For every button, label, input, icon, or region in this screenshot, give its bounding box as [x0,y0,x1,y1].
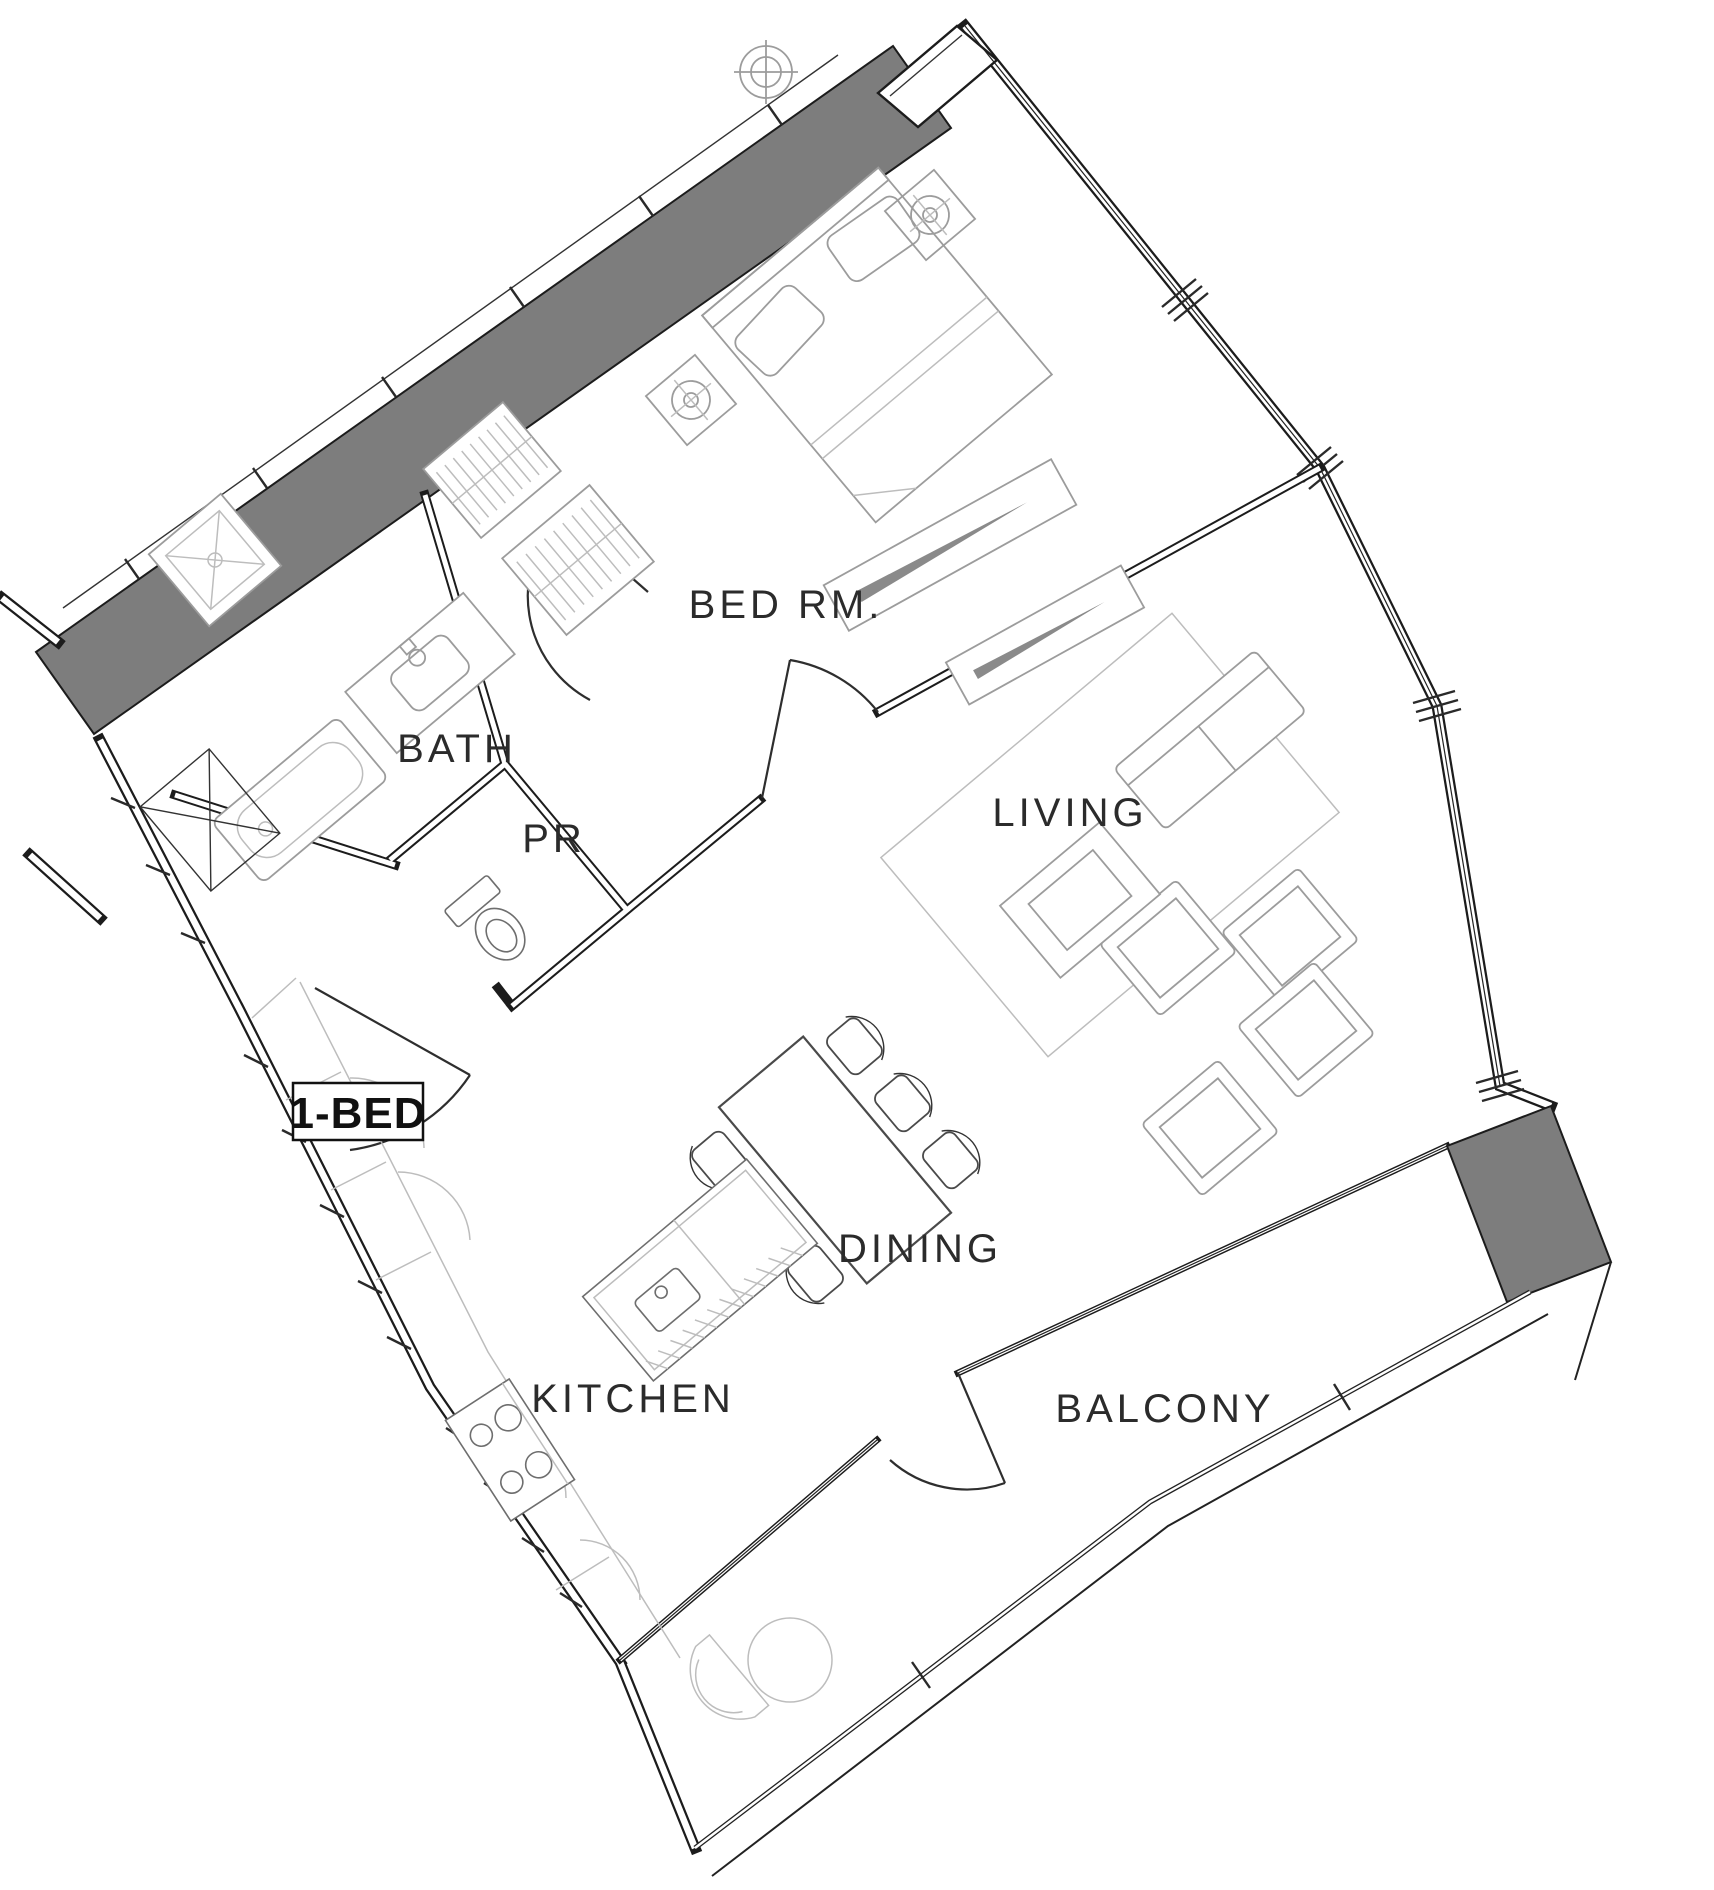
column-block [1447,1106,1611,1302]
room-label-living: LIVING [992,791,1147,835]
floor-plan-drawing: 1-BED BED RM. BATH PR LIVING DINING KITC… [0,0,1714,1890]
floor-plan-canvas: 1-BED BED RM. BATH PR LIVING DINING KITC… [0,0,1714,1890]
balcony-railing [695,1292,1530,1848]
balcony-door [890,1373,1005,1489]
balcony-outer-edge [712,1262,1611,1876]
kitchen-counter-dividers [286,1072,609,1590]
dining-chair [917,1121,990,1195]
room-label-bath: BATH [397,727,517,771]
balcony-railing-core [695,1292,1530,1848]
wardrobe-2 [502,485,654,635]
room-label-powder: PR [522,817,586,861]
nightstand-left [646,355,736,445]
kitchen-island [583,1159,818,1381]
armchair-3 [1141,1060,1278,1196]
room-label-dining: DINING [838,1227,1002,1271]
dining-chair [869,1064,942,1138]
unit-label: 1-BED [289,1089,426,1138]
balcony-chair [672,1635,768,1737]
room-label-bedroom: BED RM. [689,583,884,627]
armchair-4 [1237,962,1374,1098]
room-label-kitchen: KITCHEN [531,1377,735,1421]
bed-bench [946,566,1144,705]
toilet [444,875,540,974]
balcony-table [748,1618,832,1702]
bedroom-door [762,660,878,798]
column-marker [734,40,798,104]
room-label-balcony: BALCONY [1055,1387,1274,1431]
